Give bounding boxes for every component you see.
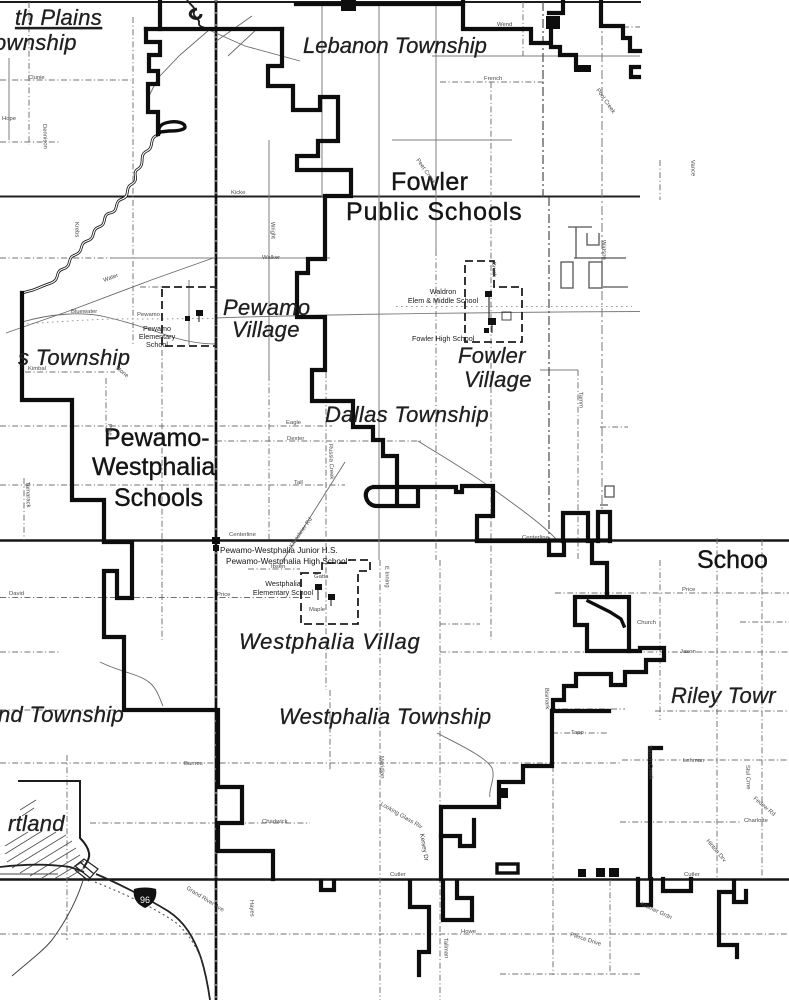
svg-text:Church: Church [637,620,656,626]
svg-text:nd Township: nd Township [0,702,124,727]
svg-text:Tisech Creek: Tisech Creek [646,745,653,780]
svg-text:Bluewater: Bluewater [71,309,97,315]
svg-text:Pine: Pine [106,424,112,437]
svg-text:Dennison: Dennison [41,124,48,149]
svg-text:Pierce Drive: Pierce Drive [569,932,602,948]
svg-text:Meridian: Meridian [378,756,385,779]
svg-text:Kramer Grdn: Kramer Grdn [639,901,672,921]
svg-text:Fowler High School: Fowler High School [412,334,475,343]
svg-text:Centerline: Centerline [522,535,550,541]
svg-text:Kloeckner Rd: Kloeckner Rd [289,517,314,549]
svg-text:Westphalia: Westphalia [92,453,215,481]
svg-text:Tall: Tall [294,480,303,486]
svg-text:Pewamo-Westphalia Junior H.S.: Pewamo-Westphalia Junior H.S. [220,546,338,555]
svg-text:Grand River Ave: Grand River Ave [185,886,225,914]
svg-text:Price: Price [682,587,696,593]
svg-text:Kimbal: Kimbal [28,366,46,372]
svg-text:Elementary School: Elementary School [253,588,314,597]
svg-text:David: David [9,591,24,597]
svg-text:Russia Creek: Russia Creek [327,444,334,480]
svg-text:Dallas Township: Dallas Township [325,402,489,427]
svg-text:Elem & Middle School: Elem & Middle School [408,296,479,305]
svg-text:Water: Water [103,273,120,284]
svg-text:ownship: ownship [0,30,77,55]
svg-text:Village: Village [232,317,300,342]
svg-text:Howe: Howe [461,929,477,935]
svg-text:Price: Price [217,592,231,598]
svg-text:Bismark: Bismark [543,688,550,710]
svg-text:Fowler: Fowler [458,343,527,368]
svg-text:French: French [484,76,502,82]
svg-text:Walker: Walker [262,255,280,261]
svg-text:Pewamo: Pewamo [137,312,161,318]
svg-text:Westphalia Township: Westphalia Township [279,704,491,729]
svg-text:Wend: Wend [497,22,512,28]
svg-text:Eagle: Eagle [286,420,302,426]
svg-text:Maple: Maple [309,607,326,613]
svg-text:th Plains: th Plains [15,5,102,30]
svg-text:Village: Village [464,367,532,392]
svg-text:Tamarack: Tamarack [24,482,31,508]
svg-text:Cutler: Cutler [390,872,406,878]
svg-text:Fedew Rd: Fedew Rd [752,796,776,818]
svg-text:Riley Towr: Riley Towr [671,683,777,708]
svg-text:Krebs: Krebs [73,222,80,238]
svg-text:Jason: Jason [680,649,696,655]
svg-text:Stul Crne: Stul Crne [744,765,751,790]
svg-text:Watson: Watson [600,240,607,260]
svg-text:Lehman: Lehman [683,758,704,764]
svg-text:Kicke: Kicke [231,190,246,196]
svg-text:Tallman: Tallman [442,938,449,959]
svg-text:Schoo: Schoo [697,546,768,574]
svg-text:Looking Glass Riv: Looking Glass Riv [379,802,423,831]
svg-text:School: School [146,340,168,349]
svg-text:Brush: Brush [490,262,497,278]
svg-text:Lebanon Township: Lebanon Township [303,33,487,58]
svg-text:Waldron: Waldron [430,287,457,296]
svg-text:Hope: Hope [2,116,17,122]
svg-text:Vance: Vance [689,160,696,177]
svg-text:Tamm: Tamm [577,392,584,408]
svg-text:Pool Creek: Pool Creek [594,88,616,115]
svg-text:E Inning: E Inning [383,566,390,588]
svg-text:rtland: rtland [8,811,65,836]
svg-text:Gatta: Gatta [314,574,329,580]
svg-text:Public Schools: Public Schools [346,198,523,226]
svg-text:Charlotte: Charlotte [744,818,769,824]
svg-text:Westphalia: Westphalia [265,579,300,588]
svg-text:Clunie: Clunie [28,75,45,81]
svg-text:Pewamo-Westphalia High School: Pewamo-Westphalia High School [226,557,348,566]
svg-text:Schools: Schools [114,484,203,512]
svg-text:Westphalia Villag: Westphalia Villag [239,629,421,654]
svg-text:Pewamo-: Pewamo- [104,424,210,452]
svg-text:Hayes: Hayes [248,900,255,917]
svg-text:Kersey Dr: Kersey Dr [418,833,430,861]
svg-text:Dexter: Dexter [287,436,304,442]
svg-text:Centerline: Centerline [229,532,257,538]
svg-text:Barnes: Barnes [184,761,203,767]
svg-text:Chadwick: Chadwick [262,819,288,825]
svg-text:Cutler: Cutler [684,872,700,878]
svg-text:Hinton Drv: Hinton Drv [704,838,727,863]
svg-text:Wright: Wright [269,222,276,239]
svg-text:Tapp: Tapp [571,730,584,736]
